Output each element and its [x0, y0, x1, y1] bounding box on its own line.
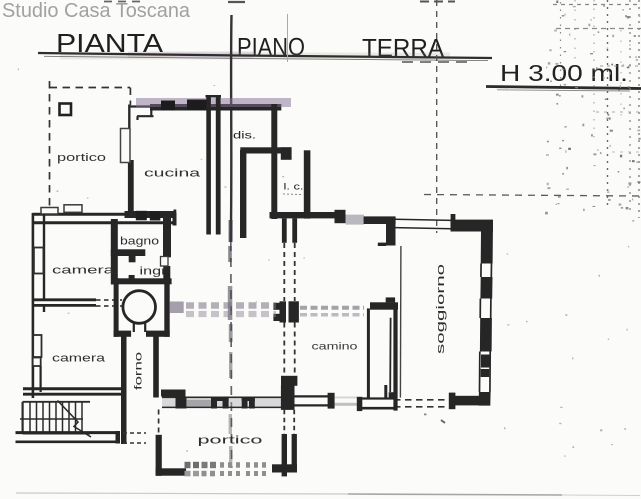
svg-text:portico: portico — [57, 152, 106, 164]
svg-text:cucina: cucina — [144, 168, 202, 180]
svg-text:Studio Casa Toscana: Studio Casa Toscana — [2, 0, 191, 22]
svg-text:portico: portico — [198, 435, 263, 447]
svg-text:ingr: ingr — [140, 266, 168, 278]
svg-text:forno: forno — [134, 351, 145, 390]
svg-text:camino: camino — [312, 342, 358, 353]
svg-text:dis.: dis. — [233, 131, 256, 142]
svg-text:camera: camera — [52, 353, 106, 365]
svg-text:H 3.00 ml.: H 3.00 ml. — [500, 60, 628, 86]
svg-text:soggiorno: soggiorno — [435, 264, 447, 354]
svg-text:l. c.: l. c. — [284, 182, 304, 193]
svg-text:bagno: bagno — [120, 236, 159, 248]
svg-text:camera: camera — [52, 265, 115, 277]
